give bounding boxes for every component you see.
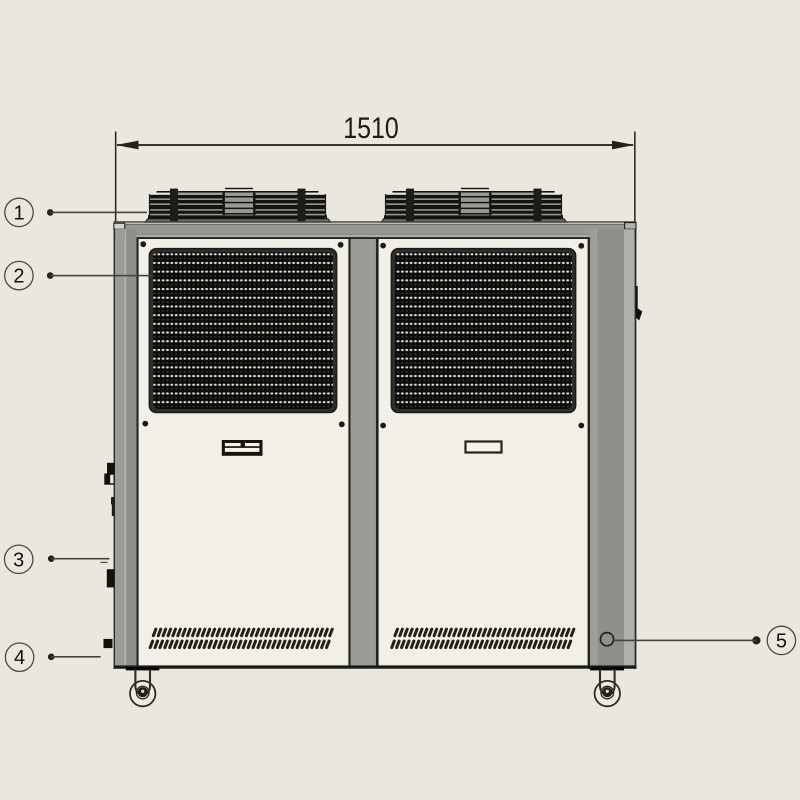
svg-text:1: 1 (13, 202, 24, 224)
svg-text:2: 2 (13, 266, 24, 288)
svg-text:3: 3 (13, 549, 24, 571)
svg-text:4: 4 (14, 647, 25, 669)
svg-text:5: 5 (776, 630, 787, 652)
svg-text:1510: 1510 (343, 112, 399, 145)
